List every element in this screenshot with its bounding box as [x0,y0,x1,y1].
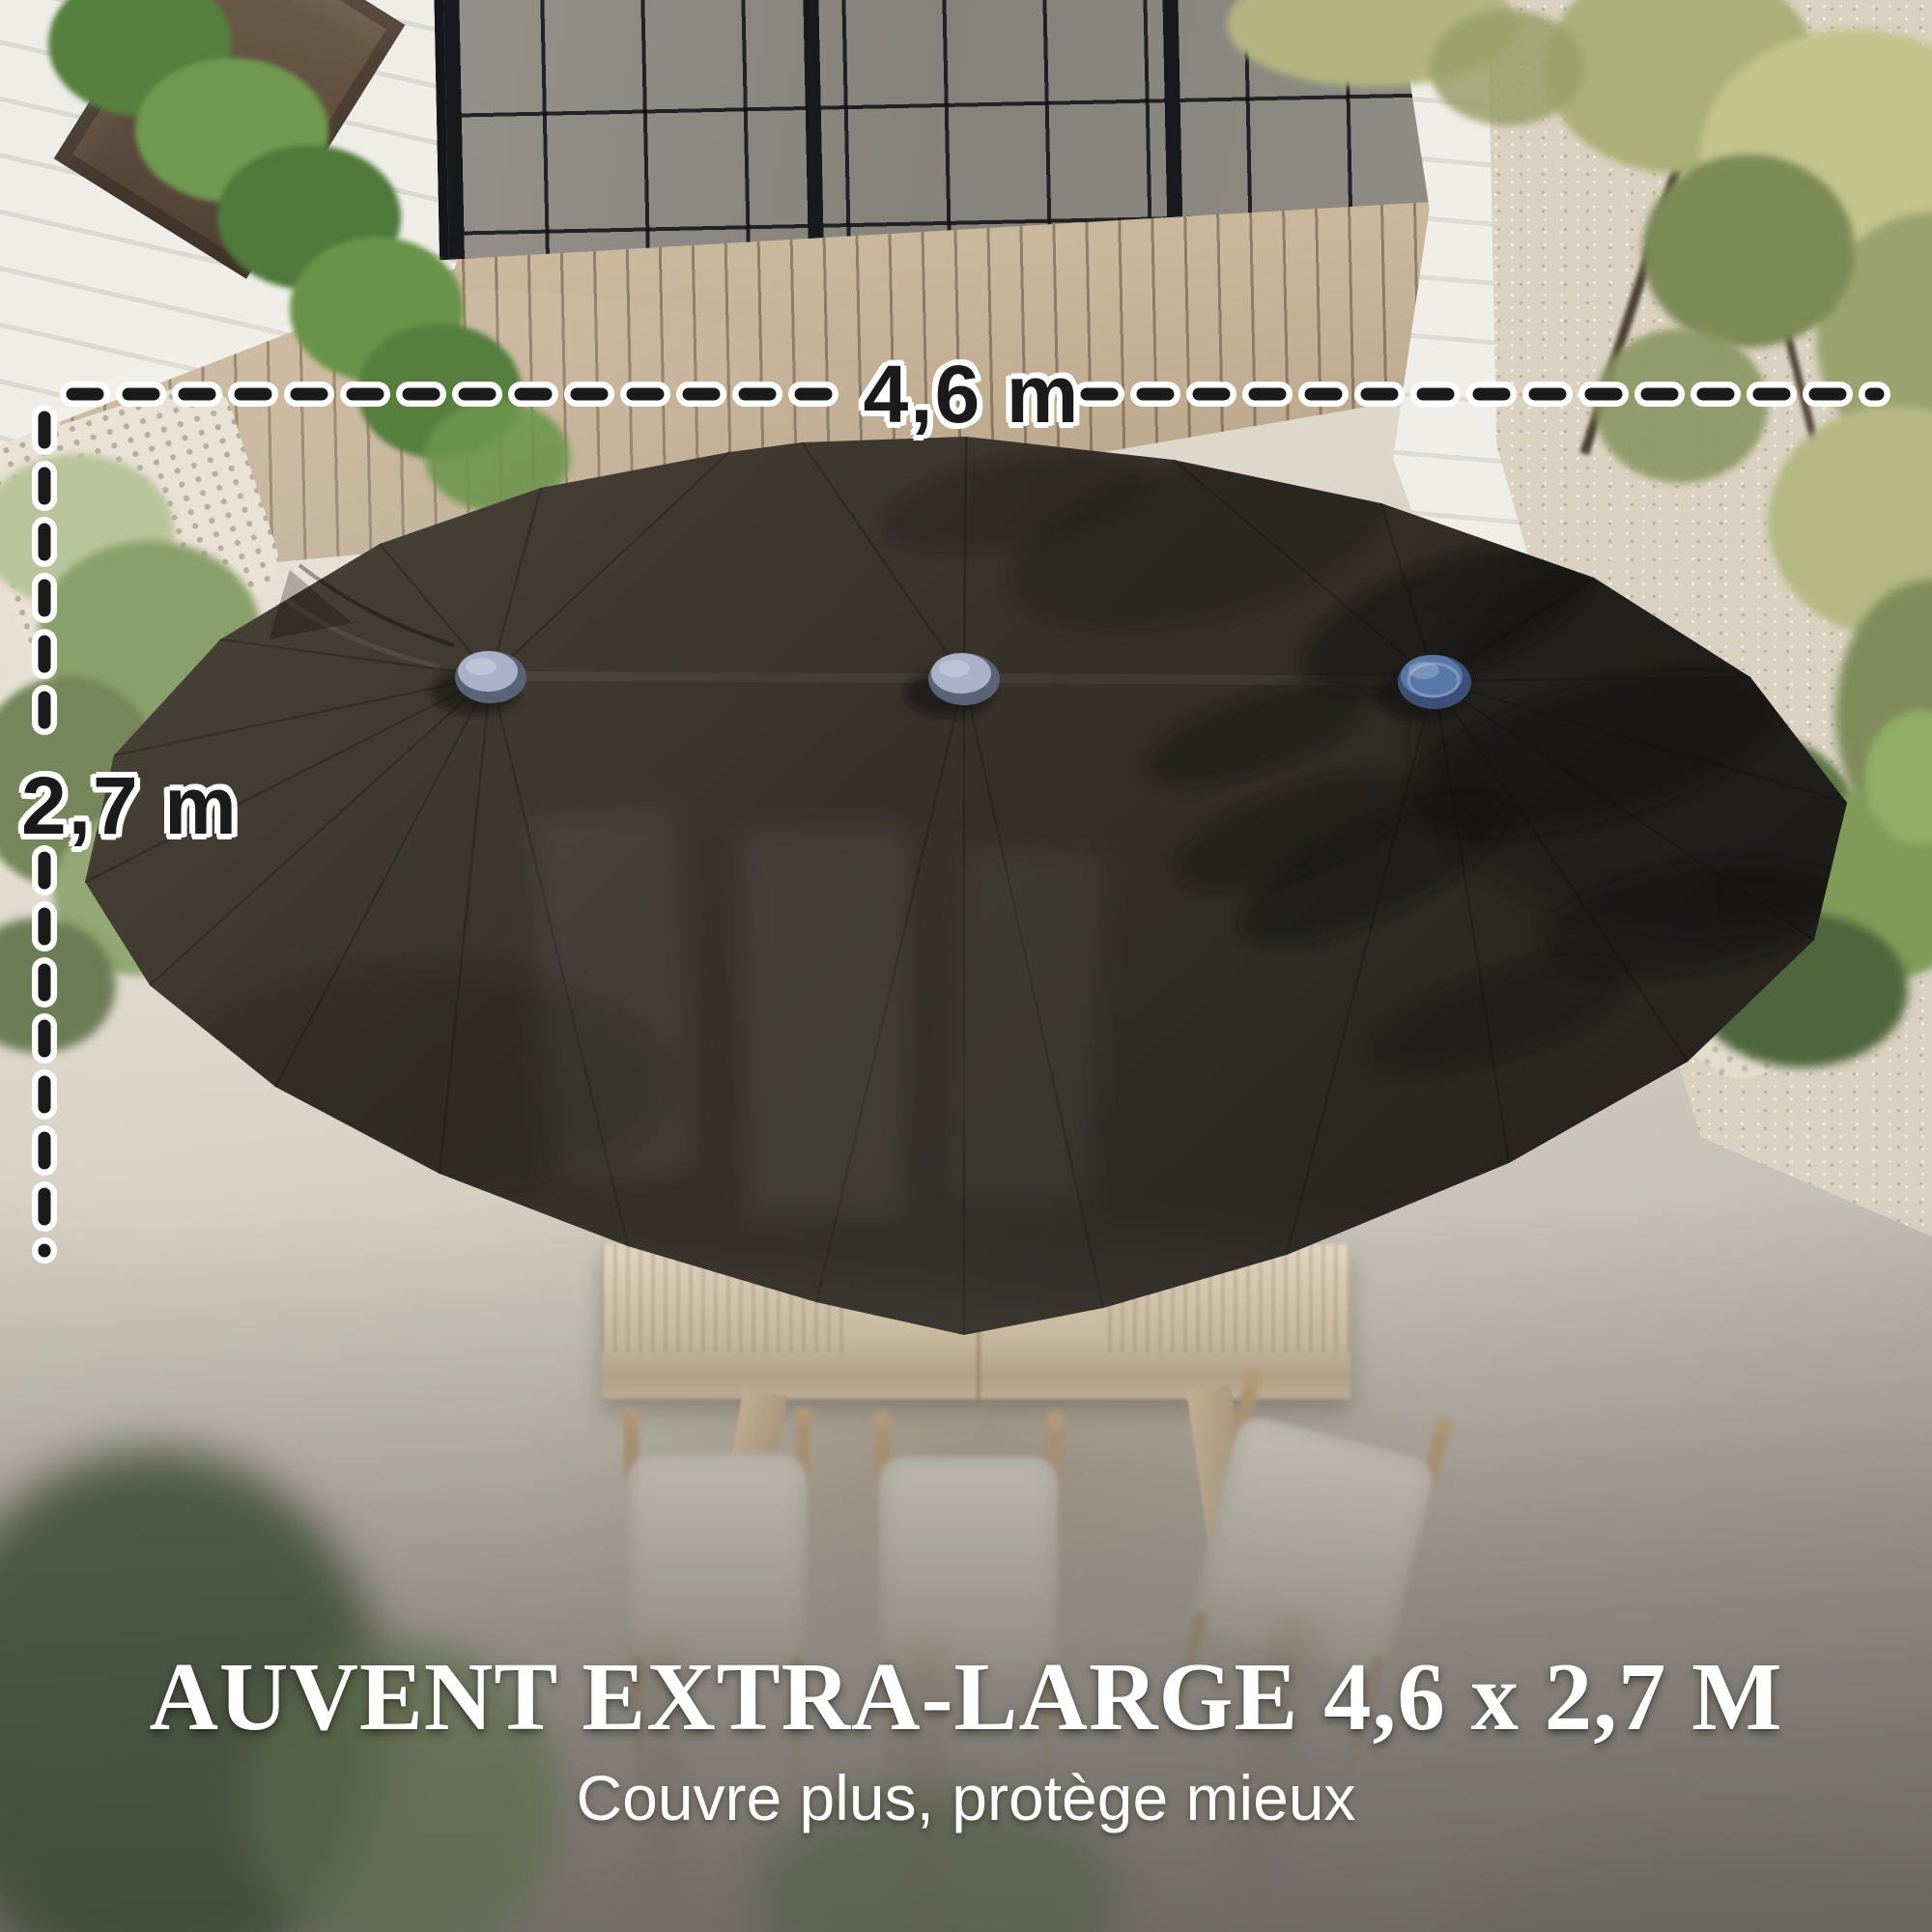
product-image-canvas: 4,6 m 2,7 m AUVENT EXTRA-LARGE 4,6 x 2,7… [0,0,1932,1932]
width-dimension-label: 4,6 m [864,354,1081,435]
depth-dimension-label: 2,7 m [21,765,239,846]
caption-title: AUVENT EXTRA-LARGE 4,6 x 2,7 M [149,1648,1782,1746]
caption-subtitle: Couvre plus, protège mieux [576,1766,1355,1830]
